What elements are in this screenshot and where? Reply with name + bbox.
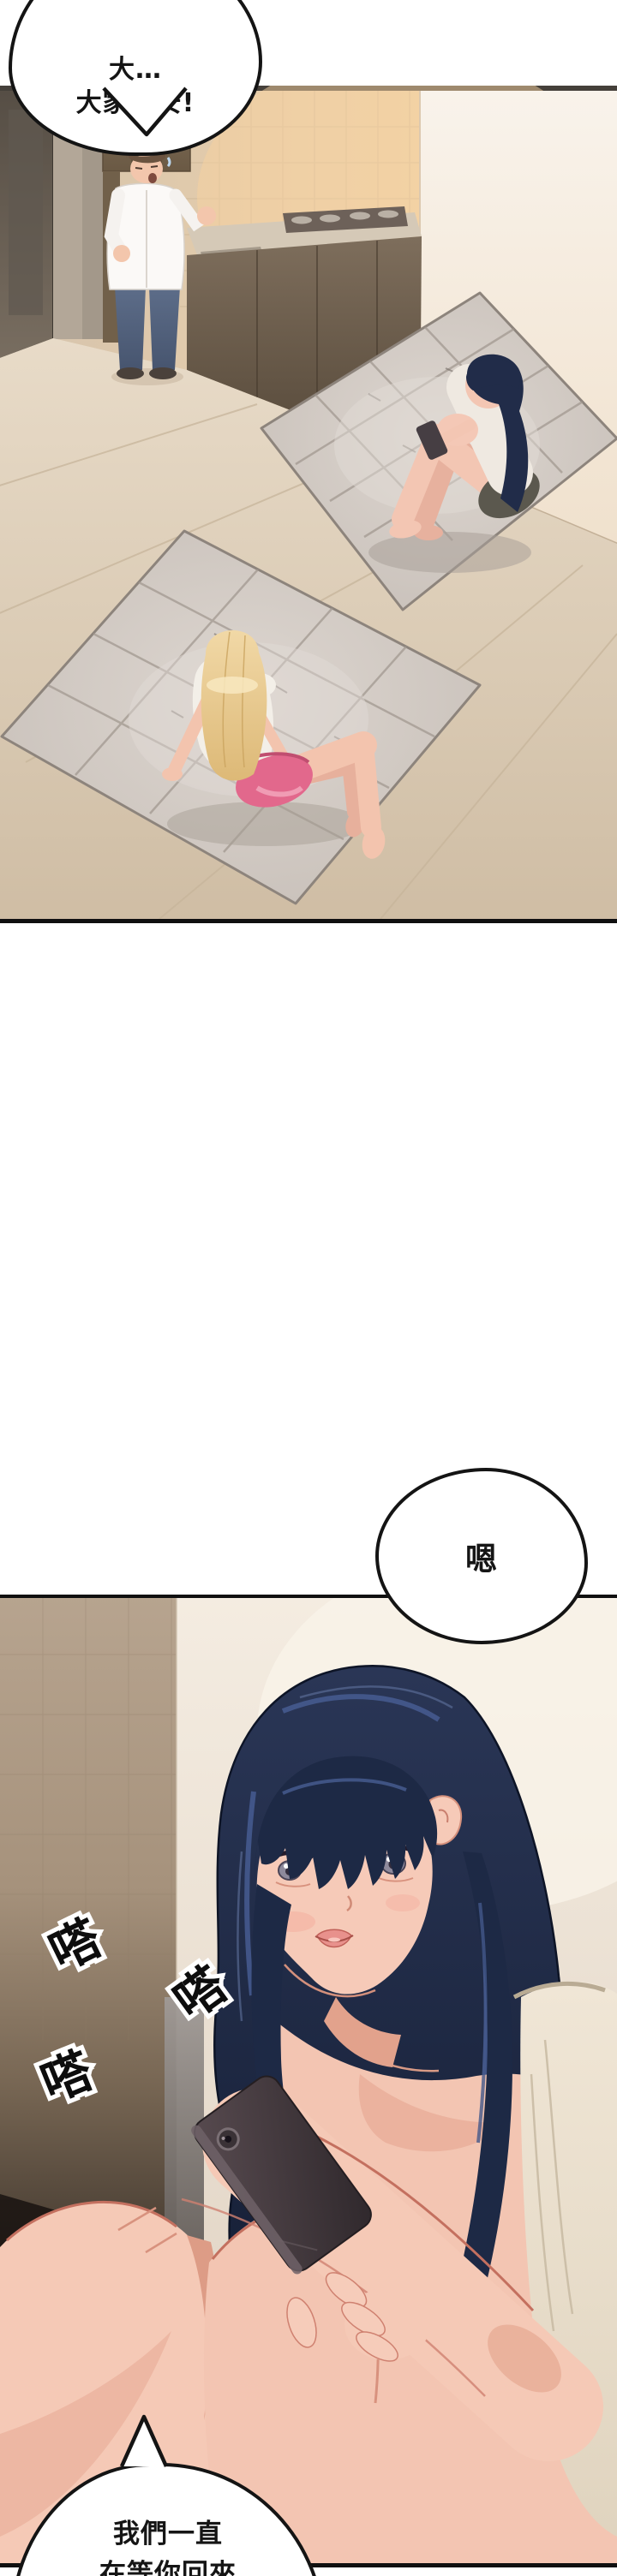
speech-text-line: 嗯 (465, 1533, 498, 1579)
speech-bubble-tail (118, 2413, 170, 2470)
panel-room-scene (0, 86, 617, 923)
comic-page: 嗒 嗒 嗒 大… 大家晚安! 嗯 我們一直 在等你回來 (0, 0, 617, 2576)
hand (162, 767, 183, 781)
jeans (115, 287, 146, 370)
open-mouth (148, 173, 157, 183)
shoe (117, 367, 144, 379)
speech-text-line: 在等你回來 (99, 2555, 237, 2576)
speech-bubble-hmm: 嗯 (375, 1468, 588, 1644)
speech-text-line: 我們一直 (113, 2514, 223, 2555)
speech-text-line: 大… (109, 53, 162, 86)
closeup-art: 嗒 嗒 嗒 (0, 1595, 617, 2567)
speech-bubble-tail (99, 86, 190, 139)
panel-closeup-phone: 嗒 嗒 嗒 (0, 1595, 617, 2567)
blonde-hair (201, 630, 267, 781)
panel-border-bottom (0, 919, 617, 923)
room-scene-art (0, 86, 617, 923)
hand (113, 245, 130, 262)
